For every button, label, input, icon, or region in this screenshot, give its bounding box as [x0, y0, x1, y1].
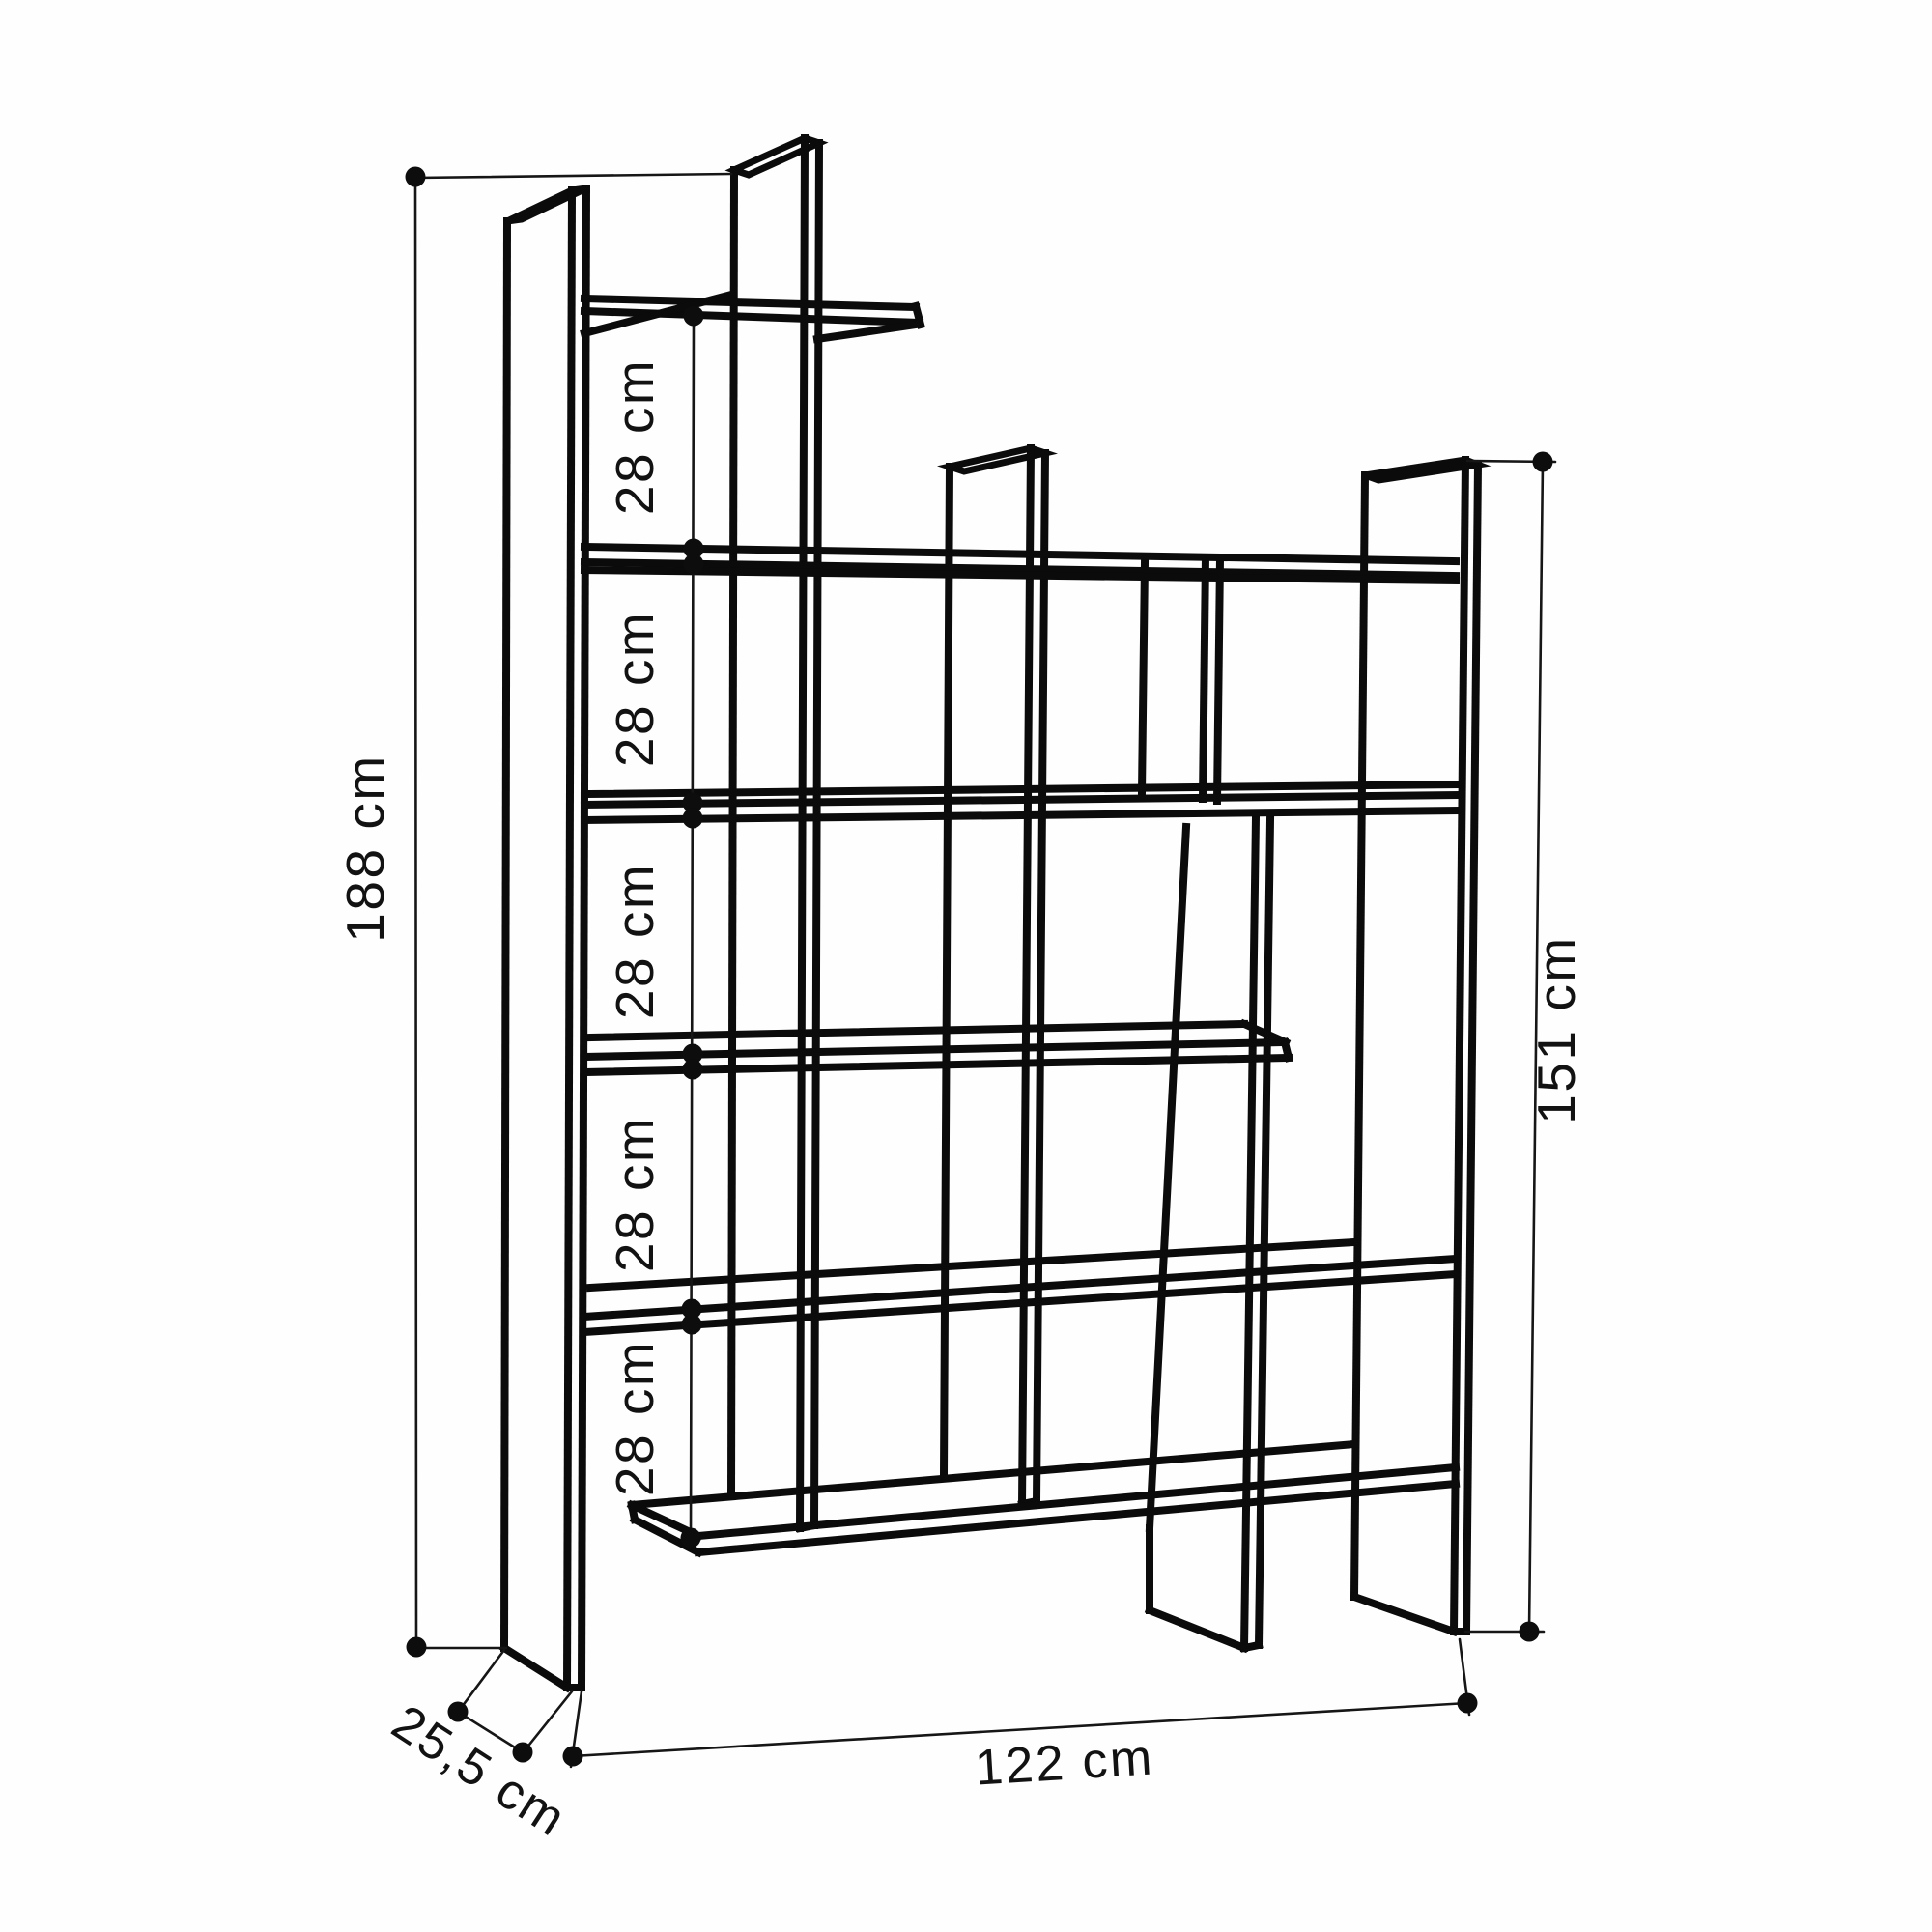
dim-dot	[682, 1315, 702, 1335]
dim-dot	[563, 1747, 583, 1767]
dim-label-right-height: 151 cm	[1526, 935, 1586, 1123]
shelf-6-bottom	[632, 1444, 1456, 1552]
dim-dot	[406, 167, 426, 187]
dim-label-spacing-1: 28 cm	[605, 358, 665, 515]
dim-dot	[683, 809, 703, 829]
dim-dot	[1533, 452, 1553, 472]
bookshelf-dimension-diagram: 188 cm 28 cm 28 cm 28 cm 28 cm 28 cm 151…	[0, 0, 1932, 1932]
dim-dot	[683, 1060, 703, 1080]
dim-dot	[681, 1528, 701, 1548]
dimension-total-height: 188 cm	[335, 167, 731, 1658]
dimension-total-width: 122 cm	[563, 1639, 1478, 1797]
panel-centre	[944, 448, 1045, 1504]
panel-right	[1354, 460, 1478, 1632]
panel-left-tall	[504, 188, 586, 1688]
dim-label-spacing-3: 28 cm	[605, 863, 665, 1019]
dim-label-spacing-4: 28 cm	[605, 1116, 665, 1272]
dim-dot	[407, 1637, 427, 1658]
dim-dot	[684, 554, 704, 575]
divider-lower-right	[1150, 817, 1270, 1648]
dim-label-spacing-5: 28 cm	[605, 1340, 665, 1496]
shelf-2	[584, 547, 1456, 581]
dim-dot	[513, 1743, 533, 1763]
shelf-3	[584, 784, 1456, 820]
dim-label-total-height: 188 cm	[335, 753, 395, 942]
dim-label-total-width: 122 cm	[974, 1729, 1156, 1796]
dimension-right-height: 151 cm	[1465, 452, 1586, 1642]
diagram-canvas: 188 cm 28 cm 28 cm 28 cm 28 cm 28 cm 151…	[0, 0, 1932, 1932]
dim-label-depth: 25,5 cm	[383, 1694, 577, 1848]
dim-dot	[1520, 1622, 1540, 1642]
shelf-1	[584, 295, 921, 339]
dim-dot	[684, 306, 704, 327]
dim-dot	[1458, 1693, 1478, 1714]
divider-upper-right	[1142, 557, 1220, 801]
dim-label-spacing-2: 28 cm	[605, 611, 665, 767]
dimension-shelf-spacings: 28 cm 28 cm 28 cm 28 cm 28 cm	[605, 306, 704, 1548]
